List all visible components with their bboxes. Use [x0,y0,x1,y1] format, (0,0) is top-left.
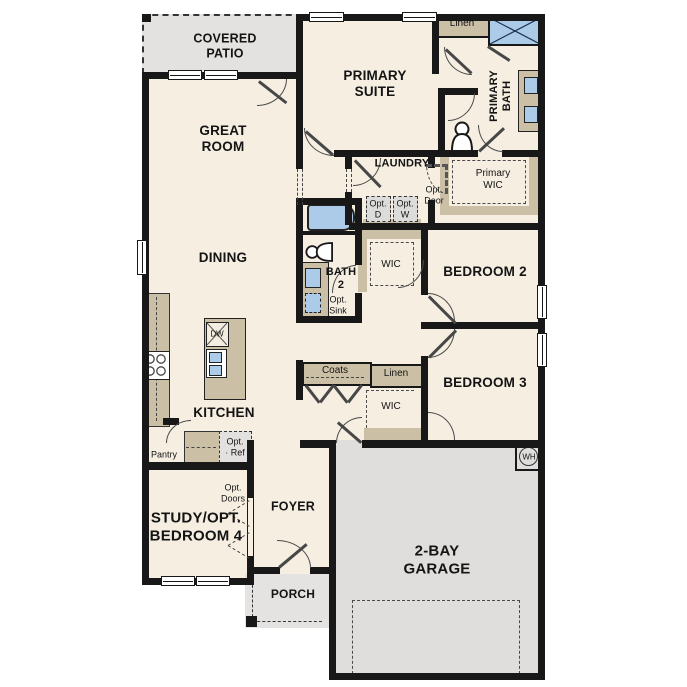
wall [438,150,478,157]
room-label-primary-suite: PRIMARY SUITE [343,68,406,100]
bath2-sink [305,268,321,288]
wall [355,198,362,265]
wall [421,223,428,295]
closet-label-primary-wic: Primary WIC [476,168,510,192]
room-label-bath2: BATH 2 [326,266,357,292]
wall [142,72,149,585]
wall [252,567,280,574]
wic-shelf-bottom [440,206,538,215]
island-sink [206,349,227,378]
opt-washer-label: Opt. W [396,198,413,219]
wall [421,356,428,440]
opt-door-label: Opt. Door [424,184,444,205]
coats-dash [306,377,364,378]
window [537,285,547,319]
room-label-study: STUDY/OPT. BEDROOM 4 [150,509,243,544]
room-label-laundry: LAUNDRY [375,158,430,171]
water-heater-label: WH [522,452,535,461]
wall [502,150,545,157]
room-label-foyer: FOYER [271,500,315,515]
wall [300,440,336,448]
window [309,12,344,22]
room-label-dining: DINING [199,250,247,266]
room-label-bedroom2: BEDROOM 2 [443,264,527,280]
primary-sink-2 [524,106,538,123]
wall [296,14,303,79]
primary-sink-1 [524,77,538,94]
closet-label-wic3: WIC [381,401,400,413]
closet-label-pantry: Pantry [151,450,177,461]
garage-door-dashed [352,600,520,674]
wall [142,462,254,470]
bath2-opt-sink [305,293,321,313]
wall [362,440,545,448]
opt-sink-label: Opt. Sink [329,294,347,315]
room-label-porch: PORCH [271,587,315,601]
wall [349,223,545,230]
room-label-bedroom3: BEDROOM 3 [443,375,527,391]
opt-doors-label: Opt. Doors [221,482,245,503]
closet-label-coats: Coats [322,365,348,377]
wall [345,157,352,169]
room-label-primary-bath: PRIMARY BATH [488,70,514,122]
window [137,240,147,275]
dishwasher-label: DW [210,329,223,338]
cased-opening [351,169,352,192]
wall [421,322,545,329]
wall [296,79,303,169]
opt-dryer-label: Opt. D [369,198,386,219]
closet-label-wic2: WIC [381,259,400,271]
tub-wall [300,231,360,235]
cased-opening [297,169,298,205]
room-label-great-room: GREAT ROOM [199,123,246,155]
wall [329,673,545,680]
wall [438,88,445,155]
opt-ref-label: Opt. · Ref [225,436,245,457]
room-label-covered-patio: COVERED PATIO [193,31,256,61]
window [402,12,437,22]
wall [345,192,352,225]
window [537,333,547,367]
patio-corner-post [142,14,151,22]
window [196,576,230,586]
wic3-shelf [364,428,421,440]
wall [329,440,336,680]
wall [432,14,439,74]
window [204,70,238,80]
cased-opening [346,169,347,192]
window [161,576,195,586]
window [168,70,202,80]
closet-label-linen-hall: Linen [384,368,408,380]
porch-column [246,616,257,627]
wic2-shelf-top [358,230,421,239]
wall [334,150,438,157]
wall [296,316,362,323]
wall [296,205,303,323]
counter2-dash [186,447,216,448]
floor-plan: COVERED PATIO GREAT ROOM PRIMARY SUITE P… [0,0,687,687]
cased-opening [302,169,303,205]
room-label-garage: 2-BAY GARAGE [403,542,470,577]
wall [296,198,362,205]
wall [296,360,303,400]
closet-label-linen-primary: Linen [450,18,474,30]
room-label-kitchen: KITCHEN [193,405,254,421]
bath2-toilet [305,240,338,264]
